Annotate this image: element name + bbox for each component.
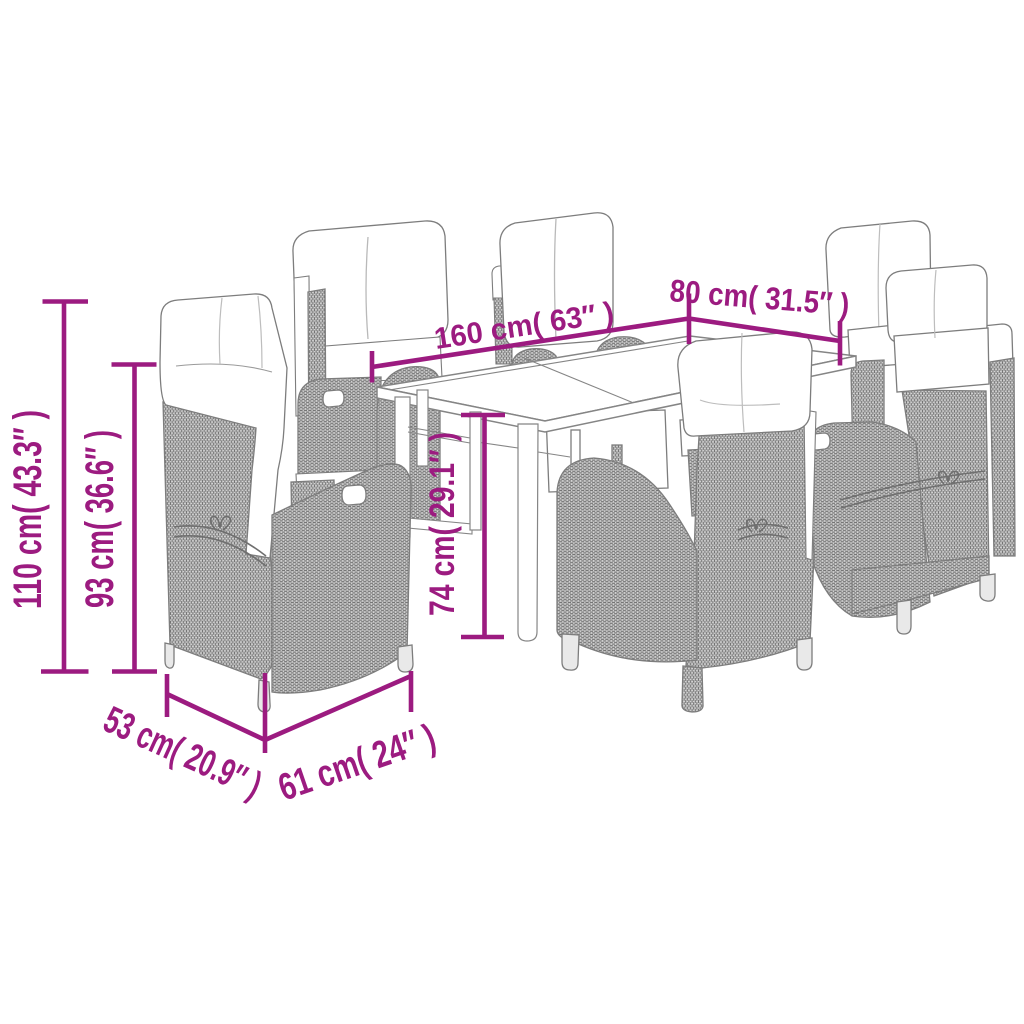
svg-text:74 cm( 29.1″ ): 74 cm( 29.1″ ) [423, 432, 462, 616]
svg-text:93 cm( 36.6″ ): 93 cm( 36.6″ ) [78, 430, 122, 608]
svg-text:110 cm( 43.3″ ): 110 cm( 43.3″ ) [6, 410, 50, 609]
